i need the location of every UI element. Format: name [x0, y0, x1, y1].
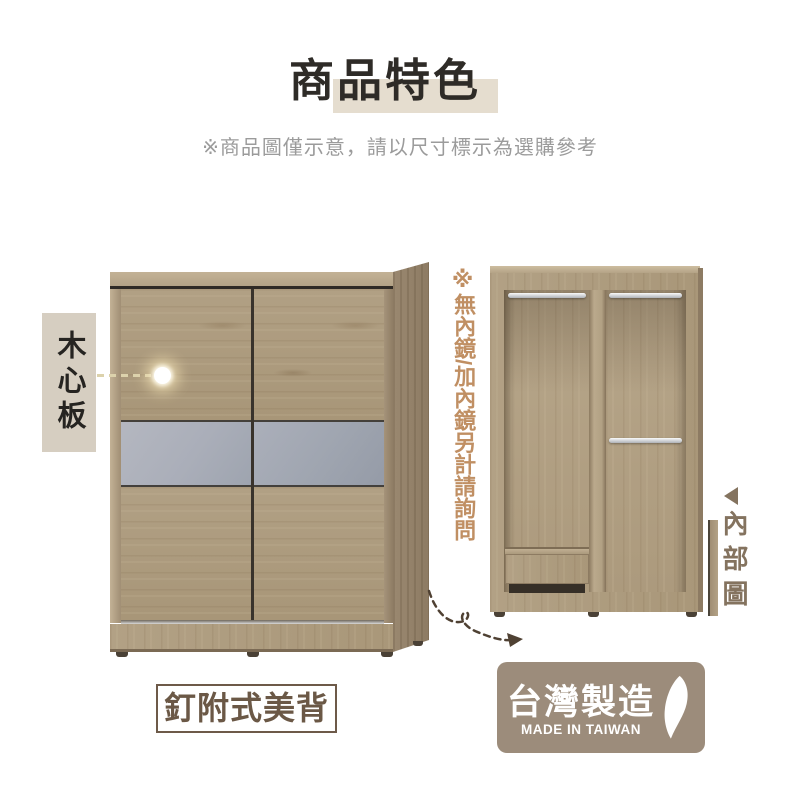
door-wood-panel	[254, 487, 384, 620]
interior-drawer	[505, 554, 589, 584]
wardrobe-foot	[686, 612, 697, 617]
page-subtitle: ※商品圖僅示意，請以尺寸標示為選購參考	[0, 131, 800, 160]
sliding-doors	[121, 289, 384, 620]
door-gray-panel	[254, 420, 384, 487]
product-feature-panel: 商品特色 ※商品圖僅示意，請以尺寸標示為選購參考	[0, 0, 800, 800]
wardrobe-base	[110, 624, 393, 652]
wardrobe-left-stile	[110, 289, 121, 623]
page-title: 商品特色	[0, 44, 770, 109]
door-gray-panel	[121, 420, 251, 487]
wardrobe-foot	[381, 652, 393, 657]
door-wood-panel	[121, 289, 251, 420]
wardrobe-foot	[116, 652, 128, 657]
badge-subtitle: MADE IN TAIWAN	[505, 722, 657, 737]
taiwan-island-icon	[661, 675, 691, 740]
wardrobe-right-stile	[384, 289, 393, 623]
door-wood-panel	[121, 487, 251, 620]
highlight-dot-icon	[154, 367, 171, 384]
wardrobe-foot	[588, 612, 599, 617]
interior-label: 內部圖	[716, 510, 753, 615]
door-wood-panel	[254, 289, 384, 420]
back-panel-label: 釘附式美背	[156, 684, 337, 733]
interior-back-panel	[504, 290, 686, 592]
made-in-taiwan-badge: 台灣製造 MADE IN TAIWAN	[497, 662, 705, 753]
wardrobe-foot	[494, 612, 505, 617]
interior-shelf	[505, 547, 589, 554]
wardrobe-interior-image	[490, 266, 722, 626]
drawer-handle-slot	[509, 584, 585, 593]
hanging-rod	[508, 293, 586, 298]
hanging-rod	[609, 293, 682, 298]
badge-title: 台灣製造	[505, 674, 657, 725]
wardrobe-side-sliver	[698, 268, 703, 612]
wardrobe-side-panel	[393, 262, 429, 652]
left-triangle-icon	[724, 487, 738, 505]
wardrobe-foot	[413, 641, 423, 646]
wardrobe-front-image	[110, 260, 432, 660]
wardrobe-front-face	[110, 272, 393, 652]
material-label: 木心板	[42, 313, 96, 452]
interior-divider	[589, 290, 606, 592]
wardrobe-foot	[247, 652, 259, 657]
wardrobe-top-rail	[110, 272, 393, 286]
door-gap-line	[251, 289, 254, 620]
hanging-rod	[609, 438, 682, 443]
mirror-note-label: ※無內鏡/加內鏡另計請詢問	[452, 268, 475, 568]
material-dashed-line	[97, 374, 151, 377]
sliding-door-left	[121, 289, 251, 620]
wardrobe-interior-top	[490, 266, 700, 273]
sliding-door-right	[254, 289, 384, 620]
